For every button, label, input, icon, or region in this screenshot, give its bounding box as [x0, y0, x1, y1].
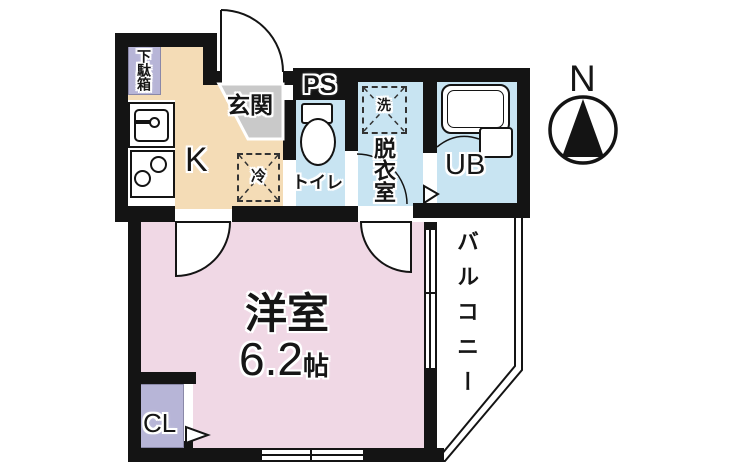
dressing-room-door	[361, 222, 411, 272]
bathtub-inner	[447, 90, 504, 128]
toilet-label: トイレ	[292, 174, 343, 191]
closet-door-arrow	[186, 427, 208, 443]
room-size-unit: 帖	[303, 351, 329, 381]
closet-label: CL	[143, 410, 176, 436]
toilet-bowl	[300, 118, 336, 166]
stove-burner-1	[150, 156, 167, 173]
balcony-label: バルコニー	[455, 230, 477, 405]
compass-north-label: N	[569, 60, 596, 97]
entrance-door-arc	[221, 10, 283, 72]
pipe-space-label: PS	[303, 73, 336, 98]
unit-bath-label: UB	[445, 151, 485, 180]
plan-linework	[0, 0, 730, 470]
kitchen-room-door	[176, 222, 230, 276]
faucet-knob	[149, 117, 160, 128]
bath-curtain-line	[437, 136, 479, 147]
room-size-label: 6.2帖	[239, 336, 329, 382]
dressing-room-label: 脱衣室	[372, 137, 394, 203]
refrigerator-label: 冷	[251, 169, 266, 184]
stove-burner-2	[134, 170, 151, 187]
compass-needle	[562, 99, 604, 157]
faucet	[134, 120, 150, 124]
shoe-box-label: 下駄箱	[137, 49, 151, 91]
unit-bath-door-arrow	[424, 186, 438, 203]
kitchen-label: K	[185, 143, 208, 177]
room-size-value: 6.2	[239, 333, 303, 385]
floor-plan: K 玄関 下駄箱 PS トイレ 冷 洗 脱衣室 UB 洋室 6.2帖 CL バル…	[0, 0, 730, 470]
western-room-label: 洋室	[245, 293, 329, 335]
entrance-label: 玄関	[227, 94, 273, 117]
washing-machine-label: 洗	[377, 98, 391, 112]
